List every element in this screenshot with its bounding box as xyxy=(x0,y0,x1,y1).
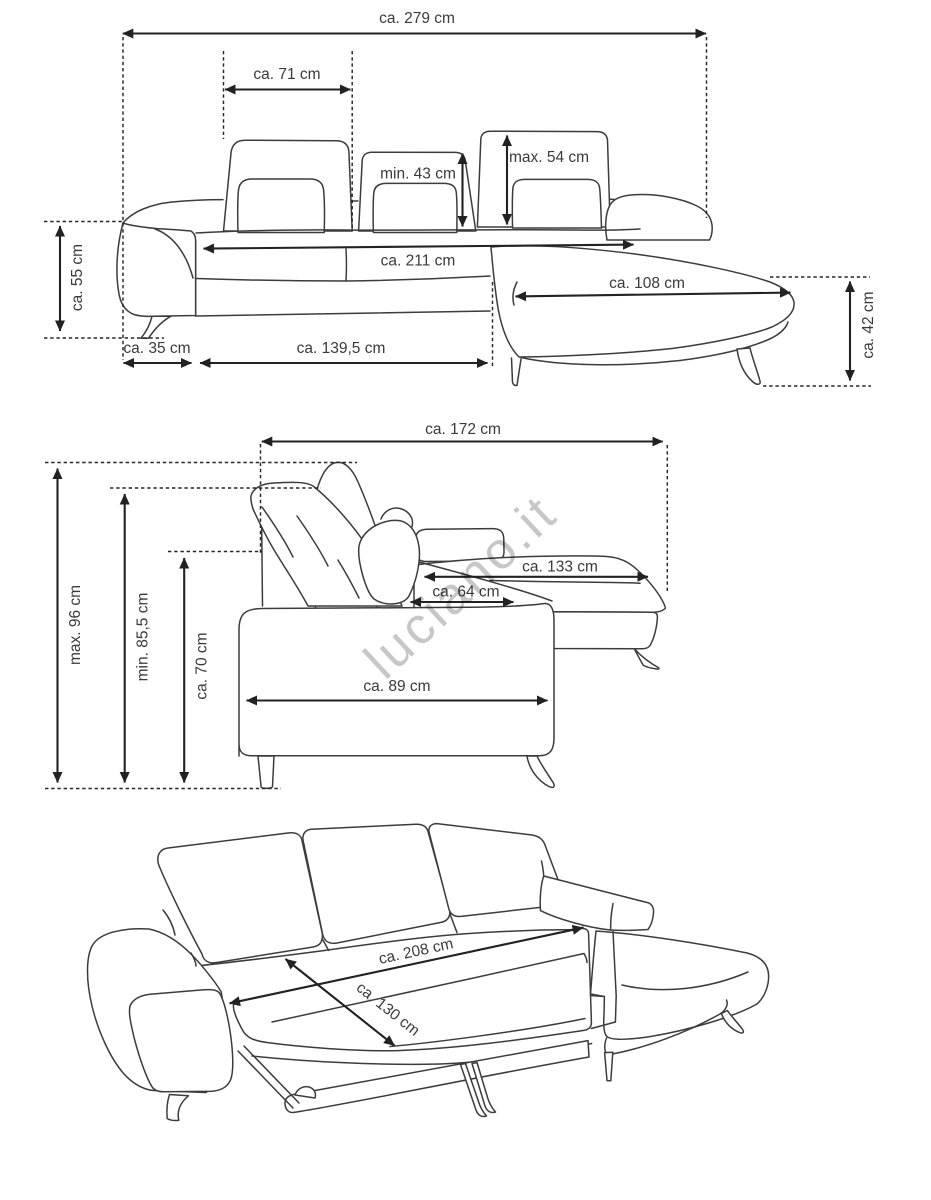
svg-text:ca. 70 cm: ca. 70 cm xyxy=(194,632,211,699)
svg-text:ca. 133 cm: ca. 133 cm xyxy=(522,559,598,576)
svg-text:ca. 172 cm: ca. 172 cm xyxy=(425,421,501,438)
svg-text:ca. 279 cm: ca. 279 cm xyxy=(379,10,455,27)
svg-text:min. 85,5 cm: min. 85,5 cm xyxy=(135,593,152,682)
svg-text:ca. 42 cm: ca. 42 cm xyxy=(860,291,877,358)
svg-text:min. 43 cm: min. 43 cm xyxy=(380,166,456,183)
svg-text:ca. 211 cm: ca. 211 cm xyxy=(381,253,456,270)
svg-text:ca. 55 cm: ca. 55 cm xyxy=(69,244,86,311)
svg-text:ca. 71 cm: ca. 71 cm xyxy=(253,66,320,83)
svg-text:ca. 108 cm: ca. 108 cm xyxy=(609,275,685,292)
svg-text:ca. 35 cm: ca. 35 cm xyxy=(123,340,190,357)
svg-text:ca. 139,5 cm: ca. 139,5 cm xyxy=(297,340,386,357)
svg-text:max. 96 cm: max. 96 cm xyxy=(67,585,84,665)
svg-text:max. 54 cm: max. 54 cm xyxy=(509,149,589,166)
